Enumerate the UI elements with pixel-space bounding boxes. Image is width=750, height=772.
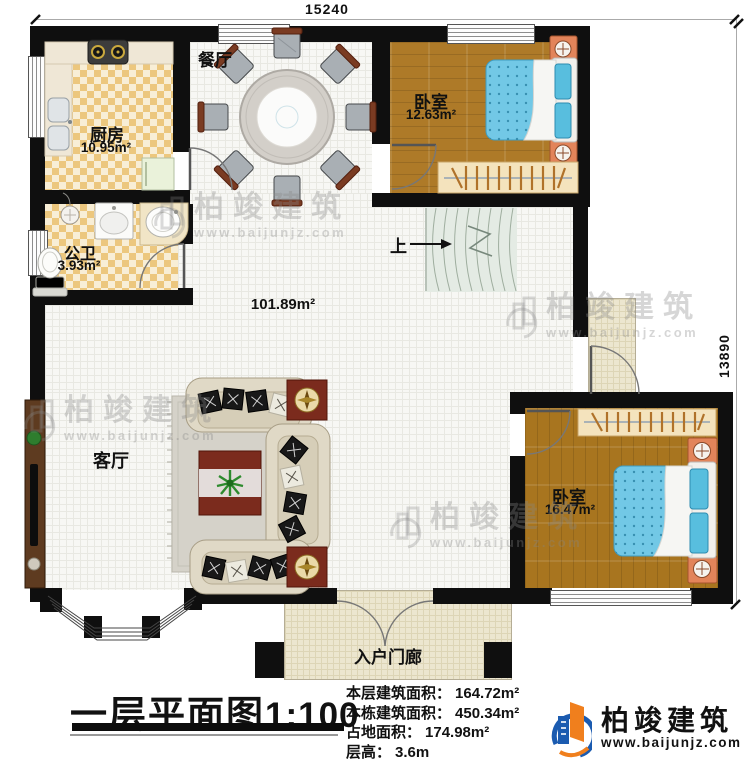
title-underline xyxy=(72,723,344,731)
tv-cabinet xyxy=(25,400,45,588)
dining-table xyxy=(240,70,334,164)
stat-floor-height: 层高：3.6m xyxy=(346,743,519,763)
kitchen-area: 10.95m² xyxy=(81,140,131,155)
staircase xyxy=(426,208,516,291)
bathroom-sink-icon xyxy=(95,203,133,239)
porch-label: 入户门廊 xyxy=(354,643,422,668)
logo-website: www.baijunjz.com xyxy=(601,735,742,750)
stairs-up-label: 上 xyxy=(390,232,407,257)
dining-label: 餐厅 xyxy=(198,46,232,71)
stat-floor-area: 本层建筑面积：164.72m² xyxy=(346,684,519,704)
bedroom1-furniture xyxy=(438,36,578,193)
bedroom2-furniture xyxy=(578,409,717,583)
stat-building-area: 本栋建筑面积：450.34m² xyxy=(346,704,519,724)
bedroom1-door xyxy=(392,145,436,189)
plant-icon xyxy=(27,431,41,445)
living-label: 客厅 xyxy=(93,447,129,473)
sofa-group xyxy=(167,378,330,594)
side-door xyxy=(591,346,639,394)
bedroom2-area: 16.47m² xyxy=(545,502,595,517)
kitchen-door xyxy=(190,148,232,190)
closet xyxy=(578,409,716,436)
company-logo: 柏竣建筑 www.baijunjz.com xyxy=(546,698,742,758)
bedroom2-door xyxy=(527,411,570,454)
stats-block: 本层建筑面积：164.72m² 本栋建筑面积：450.34m² 占地面积：174… xyxy=(346,684,519,762)
coffee-table xyxy=(199,451,261,515)
floor-plan-page: { "plan": { "dim_top": "15240", "dim_rig… xyxy=(0,0,750,772)
bay-window xyxy=(48,596,196,640)
bath-door xyxy=(140,244,184,288)
stove-icon xyxy=(88,40,128,64)
dimension-right-value: 13890 xyxy=(716,334,732,378)
porch-double-door xyxy=(337,601,433,646)
shower-icon xyxy=(61,193,79,224)
stat-land-area: 占地面积：174.98m² xyxy=(346,723,519,743)
tv-icon xyxy=(30,464,38,546)
side-table-top xyxy=(287,380,327,420)
bath-area: 3.93m² xyxy=(58,258,101,273)
logo-icon xyxy=(546,698,592,758)
hall-basin-icon xyxy=(140,203,188,245)
closet xyxy=(438,162,578,193)
bedroom1-area: 12.63m² xyxy=(406,107,456,122)
title-underline-thin xyxy=(70,734,338,736)
side-table-bottom xyxy=(287,547,327,587)
logo-name: 柏竣建筑 xyxy=(601,706,742,735)
living-area: 101.89m² xyxy=(251,296,315,313)
stairs-up-arrow xyxy=(410,239,452,249)
fridge-icon xyxy=(142,158,174,190)
dimension-top-value: 15240 xyxy=(305,1,349,17)
